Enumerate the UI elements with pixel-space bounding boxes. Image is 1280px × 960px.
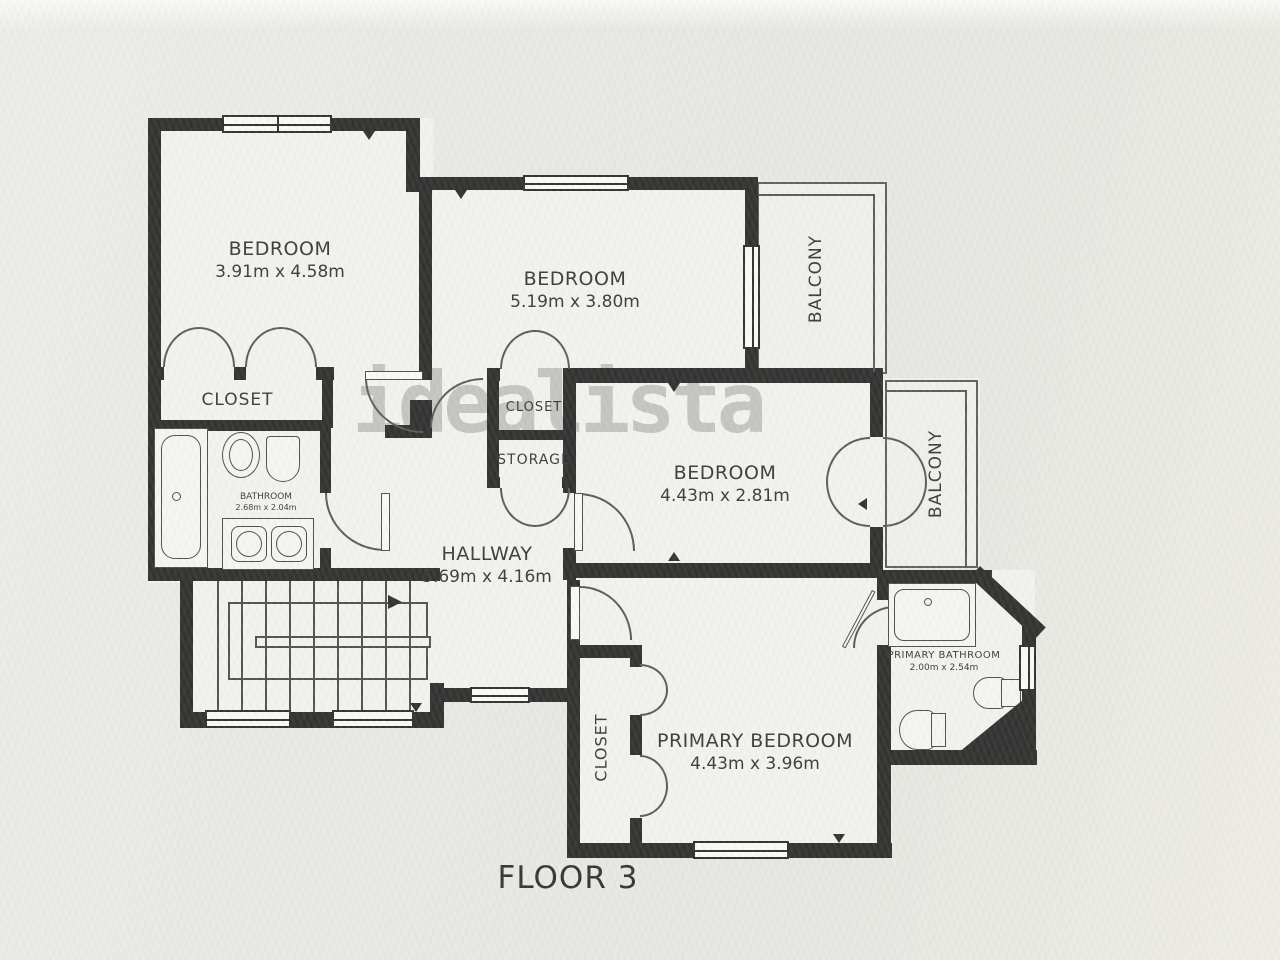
wall bbox=[487, 477, 500, 488]
bathtub-drain bbox=[172, 492, 181, 501]
wall bbox=[487, 430, 575, 440]
room-label-balcony-middle: BALCONY bbox=[926, 424, 946, 524]
window bbox=[222, 115, 332, 133]
door-leaf bbox=[570, 586, 580, 640]
room-dims: 2.00m x 2.54m bbox=[880, 663, 1008, 674]
photo-glare bbox=[0, 0, 1280, 30]
wall bbox=[180, 580, 193, 726]
wall-marker bbox=[858, 498, 867, 510]
room-label-bedroom2: BEDROOM 5.19m x 3.80m bbox=[455, 268, 695, 313]
room-name: PRIMARY BEDROOM bbox=[630, 730, 880, 754]
wall bbox=[575, 563, 883, 578]
stair-tread bbox=[289, 581, 291, 712]
room-dims: 2.68m x 2.04m bbox=[216, 503, 316, 513]
room-dims: 4.43m x 3.96m bbox=[630, 754, 880, 775]
balcony-railing bbox=[965, 390, 967, 566]
wall bbox=[419, 179, 432, 380]
room-label-bathroom: BATHROOM 2.68m x 2.04m bbox=[216, 492, 316, 513]
wall bbox=[870, 375, 883, 437]
room-label-closet1: CLOSET bbox=[180, 390, 295, 411]
window bbox=[205, 710, 291, 728]
room-label-balcony-top: BALCONY bbox=[806, 229, 826, 329]
wall-marker bbox=[455, 190, 467, 199]
balcony-railing bbox=[759, 194, 875, 196]
room-label-bedroom3: BEDROOM 4.43m x 2.81m bbox=[600, 462, 850, 507]
shower-drain bbox=[924, 598, 932, 606]
room-name: BEDROOM bbox=[160, 238, 400, 262]
stair-tread bbox=[217, 581, 219, 712]
room-label-storage: STORAGE bbox=[494, 452, 574, 470]
wall-marker bbox=[833, 834, 845, 843]
window bbox=[1019, 645, 1036, 691]
wall bbox=[563, 368, 576, 493]
room-dims: 4.43m x 2.81m bbox=[600, 486, 850, 507]
window bbox=[743, 245, 760, 349]
room-dims: 3.91m x 4.58m bbox=[160, 262, 400, 283]
window bbox=[693, 841, 789, 859]
bathtub-inner bbox=[161, 435, 201, 559]
room-dims: 5.19m x 3.80m bbox=[455, 292, 695, 313]
wall-marker bbox=[668, 383, 680, 392]
sink-basin bbox=[276, 531, 302, 557]
room-name: BEDROOM bbox=[455, 268, 695, 292]
room-name: HALLWAY bbox=[367, 543, 607, 567]
stair-tread bbox=[265, 581, 267, 712]
wall bbox=[148, 367, 164, 380]
stair-tread bbox=[313, 581, 315, 712]
balcony-railing bbox=[887, 390, 965, 392]
stair-tread bbox=[361, 581, 363, 712]
room-label-closet-middle: CLOSET bbox=[494, 400, 574, 416]
stair-tread bbox=[385, 581, 387, 712]
room-name: BEDROOM bbox=[600, 462, 850, 486]
stair-tread bbox=[337, 581, 339, 712]
sink-basin bbox=[236, 531, 262, 557]
stair-tread bbox=[409, 581, 411, 712]
wall bbox=[947, 690, 1035, 762]
wall bbox=[575, 368, 883, 383]
room-label-hallway: HALLWAY 5.69m x 4.16m bbox=[367, 543, 607, 588]
stair-rail bbox=[255, 636, 431, 648]
window bbox=[332, 710, 414, 728]
wall bbox=[320, 431, 331, 493]
shower-tray-inner bbox=[894, 589, 970, 641]
room-name: BATHROOM bbox=[216, 492, 316, 503]
wall bbox=[234, 367, 246, 380]
stair-direction-arrow bbox=[388, 595, 402, 609]
wall bbox=[487, 368, 499, 488]
room-label-closet-primary: CLOSET bbox=[592, 700, 611, 796]
bidet bbox=[266, 436, 300, 482]
toilet-tank bbox=[931, 713, 946, 747]
room-label-primary-bathroom: PRIMARY BATHROOM 2.00m x 2.54m bbox=[880, 650, 1008, 674]
floor-title: FLOOR 3 bbox=[438, 860, 698, 896]
stair-tread bbox=[241, 581, 243, 712]
floor-plan-photo: idealista bbox=[0, 0, 1280, 960]
wall-marker bbox=[410, 703, 422, 712]
window bbox=[523, 175, 629, 191]
staircase bbox=[193, 581, 430, 712]
window bbox=[470, 687, 530, 703]
room-label-bedroom1: BEDROOM 3.91m x 4.58m bbox=[160, 238, 400, 283]
wall-marker bbox=[668, 552, 680, 561]
toilet-bowl bbox=[229, 439, 253, 471]
room-label-primary-bedroom: PRIMARY BEDROOM 4.43m x 3.96m bbox=[630, 730, 880, 775]
balcony-railing bbox=[873, 194, 875, 372]
wall-marker bbox=[363, 131, 375, 140]
toilet bbox=[899, 710, 935, 750]
door-leaf bbox=[365, 371, 423, 380]
room-dims: 5.69m x 4.16m bbox=[367, 567, 607, 588]
room-name: PRIMARY BATHROOM bbox=[880, 650, 1008, 663]
